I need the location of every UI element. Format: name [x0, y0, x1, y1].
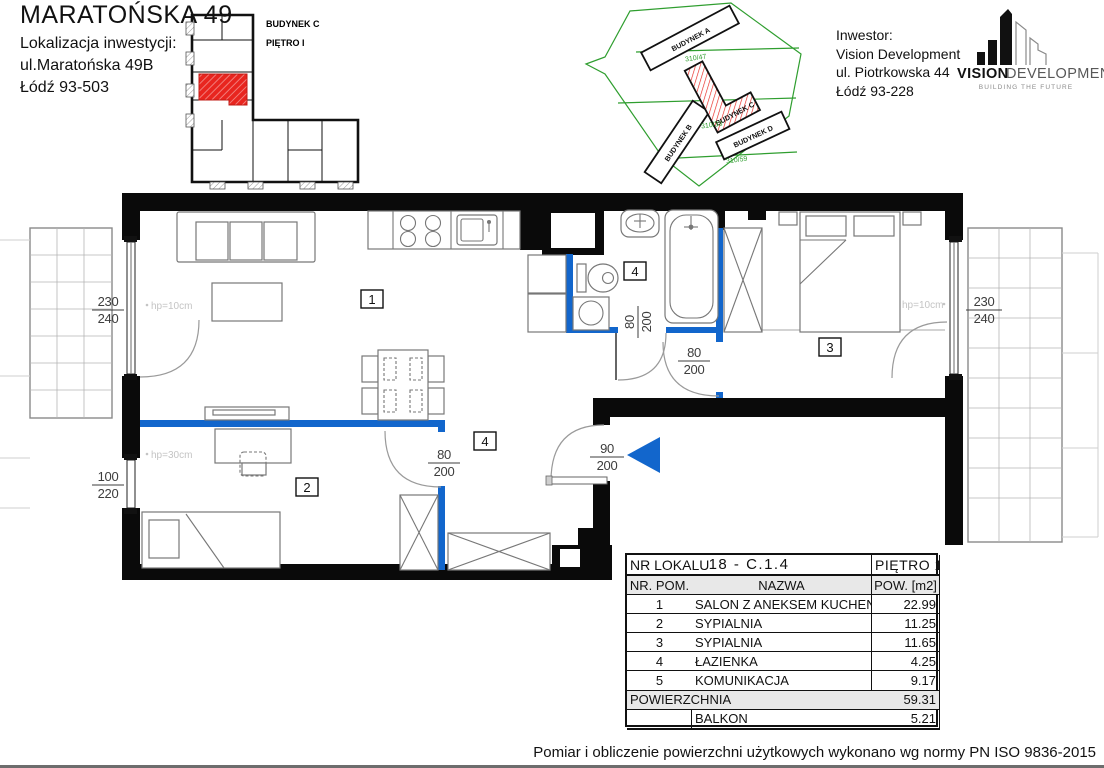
investor-street: ul. Piotrkowska 44 [836, 63, 960, 82]
page-title: MARATOŃSKA 49 [20, 4, 233, 26]
row-number: 2 [627, 614, 692, 633]
row-number: 3 [627, 633, 692, 652]
room-tag-bedroom3-number: 3 [826, 340, 833, 355]
dim-value: 230 [98, 294, 119, 309]
wardrobe-hall [448, 533, 550, 570]
floor-cell: PIĘTRO 1 [872, 555, 940, 576]
balcony-right [968, 228, 1062, 542]
row-name: SYPIALNIA [692, 614, 872, 633]
row-area: 7.82 [872, 729, 940, 730]
kitchen-tall-cabinets [528, 255, 566, 332]
investor-label: Inwestor: [836, 26, 960, 45]
investor-city: Łódź 93-228 [836, 82, 960, 101]
measurement-norm-note: Pomiar i obliczenie powierzchni użytkowy… [533, 744, 1096, 761]
logo-skyline-outline [1016, 22, 1026, 65]
row-area: 22.99 [872, 595, 940, 614]
col-header-area: POW. [m2] [872, 576, 940, 595]
dim-bathroom-door: 80 200 [622, 306, 654, 338]
row-name: BALKON [692, 729, 872, 730]
row-number [627, 729, 692, 730]
total-label-cell: POWIERZCHNIA [627, 691, 872, 710]
dim-value: 200 [434, 464, 455, 479]
dim-value: 240 [974, 311, 995, 326]
logo-brand-secondary: DEVELOPMENT [1006, 66, 1104, 82]
unit-number: 18 - C.1.4 [709, 556, 790, 573]
vision-development-logo: VISION DEVELOPMENT BUILDING THE FUTURE [957, 9, 1104, 91]
room-tag-bathroom: 4 [624, 262, 646, 280]
bathroom-sink-icon [621, 210, 659, 237]
row-area: 11.25 [872, 614, 940, 633]
hp-note-bedroom3: hp=10cm [902, 300, 943, 311]
floorplan-page: BUDYNEK C PIĘTRO I BUDYNEK A BUDYNEK B B… [0, 0, 1104, 768]
room-tag-bedroom2-number: 2 [303, 480, 310, 495]
title-line-3: Łódź 93-503 [20, 77, 233, 99]
total-value-cell: 59.31 [872, 691, 940, 710]
site-building-b: BUDYNEK B [645, 101, 710, 183]
title-block: MARATOŃSKA 49 Lokalizacja inwestycji: ul… [20, 4, 233, 99]
row-number: 5 [627, 671, 692, 690]
logo-skyline-tower [1000, 9, 1012, 65]
kitchen-counter [368, 211, 520, 249]
wardrobe-bedroom2 [400, 495, 438, 570]
washing-machine-icon [573, 297, 609, 330]
col-header-nr: NR. POM. [627, 576, 692, 595]
room-tag-living: 1 [361, 290, 383, 308]
locator-floor-label: PIĘTRO I [266, 38, 305, 48]
dim-value: 200 [639, 312, 654, 333]
dim-value: 200 [684, 362, 705, 377]
room-tag-bedroom2: 2 [296, 478, 318, 496]
dim-value: 90 [600, 441, 614, 456]
locator-balcony-tick [186, 114, 194, 127]
single-bed [142, 512, 280, 568]
row-name: ŁAZIENKA [692, 652, 872, 671]
dim-value: 80 [622, 315, 637, 329]
coffee-table [212, 283, 282, 321]
row-name: BALKON [692, 710, 872, 729]
room-tag-hall-number: 4 [481, 434, 488, 449]
row-name: SYPIALNIA [692, 633, 872, 652]
double-bed [779, 212, 921, 332]
sofa [177, 212, 315, 262]
row-number: 4 [627, 652, 692, 671]
hp-note-bedroom2: hp=30cm [151, 450, 192, 461]
kitchen-sink-icon [457, 215, 497, 245]
logo-skyline-bar [988, 40, 997, 65]
dim-value: 100 [98, 469, 119, 484]
dim-value: 80 [437, 447, 451, 462]
toilet-icon [577, 264, 618, 292]
dining-table [362, 350, 444, 420]
entrance-arrow-icon [627, 437, 660, 473]
room-tag-bedroom3: 3 [819, 338, 841, 356]
room-tag-living-number: 1 [368, 292, 375, 307]
dim-entrance-door: 90 200 [590, 441, 624, 473]
logo-brand-primary: VISION [957, 66, 1009, 82]
dim-value: 230 [974, 294, 995, 309]
room-tag-hall: 4 [474, 432, 496, 450]
floor-plan: 1 2 3 4 4 230 240 [0, 193, 1098, 580]
unit-label: NR LOKALU [630, 557, 709, 573]
hp-note-living: hp=10cm [151, 301, 192, 312]
area-table: NR LOKALU 18 - C.1.4 PIĘTRO 1 NR. POM. N… [625, 553, 938, 727]
row-area: 5.21 [872, 710, 940, 729]
title-line-2: ul.Maratońska 49B [20, 55, 233, 77]
row-number: 1 [627, 595, 692, 614]
dim-bedroom2-door: 80 200 [428, 447, 460, 479]
site-plan: BUDYNEK A BUDYNEK B BUDYNEK D BUDYNEK C … [586, 3, 801, 186]
desk [215, 429, 291, 476]
dim-value: 220 [98, 486, 119, 501]
row-name: SALON Z ANEKSEM KUCHENNYM [692, 595, 872, 614]
dim-left-balcony-door: 230 240 [92, 294, 124, 326]
logo-skyline-outline [1030, 38, 1046, 65]
locator-balcony-tick [300, 182, 315, 189]
title-line-1: Lokalizacja inwestycji: [20, 33, 233, 55]
locator-building-label: BUDYNEK C [266, 19, 320, 29]
dim-bedroom3-door: 80 200 [678, 345, 710, 377]
investor-block: Inwestor: Vision Development ul. Piotrko… [836, 26, 960, 100]
dim-value: 240 [98, 311, 119, 326]
investor-name: Vision Development [836, 45, 960, 64]
logo-tagline: BUILDING THE FUTURE [979, 84, 1073, 91]
tv-cabinet [205, 407, 289, 420]
unit-header-cell: NR LOKALU 18 - C.1.4 [627, 555, 872, 576]
col-header-name: NAZWA [692, 576, 872, 595]
row-number [627, 710, 692, 729]
wardrobe-bedroom3 [724, 228, 762, 332]
locator-balcony-tick [210, 182, 225, 189]
row-area: 11.65 [872, 633, 940, 652]
row-name: KOMUNIKACJA [692, 671, 872, 690]
locator-balcony-tick [248, 182, 263, 189]
dim-left-window: 100 220 [92, 469, 124, 501]
row-area: 4.25 [872, 652, 940, 671]
dim-value: 80 [687, 345, 701, 360]
bathtub-icon [665, 210, 718, 323]
dim-value: 200 [597, 458, 618, 473]
room-tag-bathroom-number: 4 [631, 264, 638, 279]
logo-skyline-bar [977, 52, 985, 65]
row-area: 9.17 [872, 671, 940, 690]
locator-balcony-tick [338, 182, 353, 189]
